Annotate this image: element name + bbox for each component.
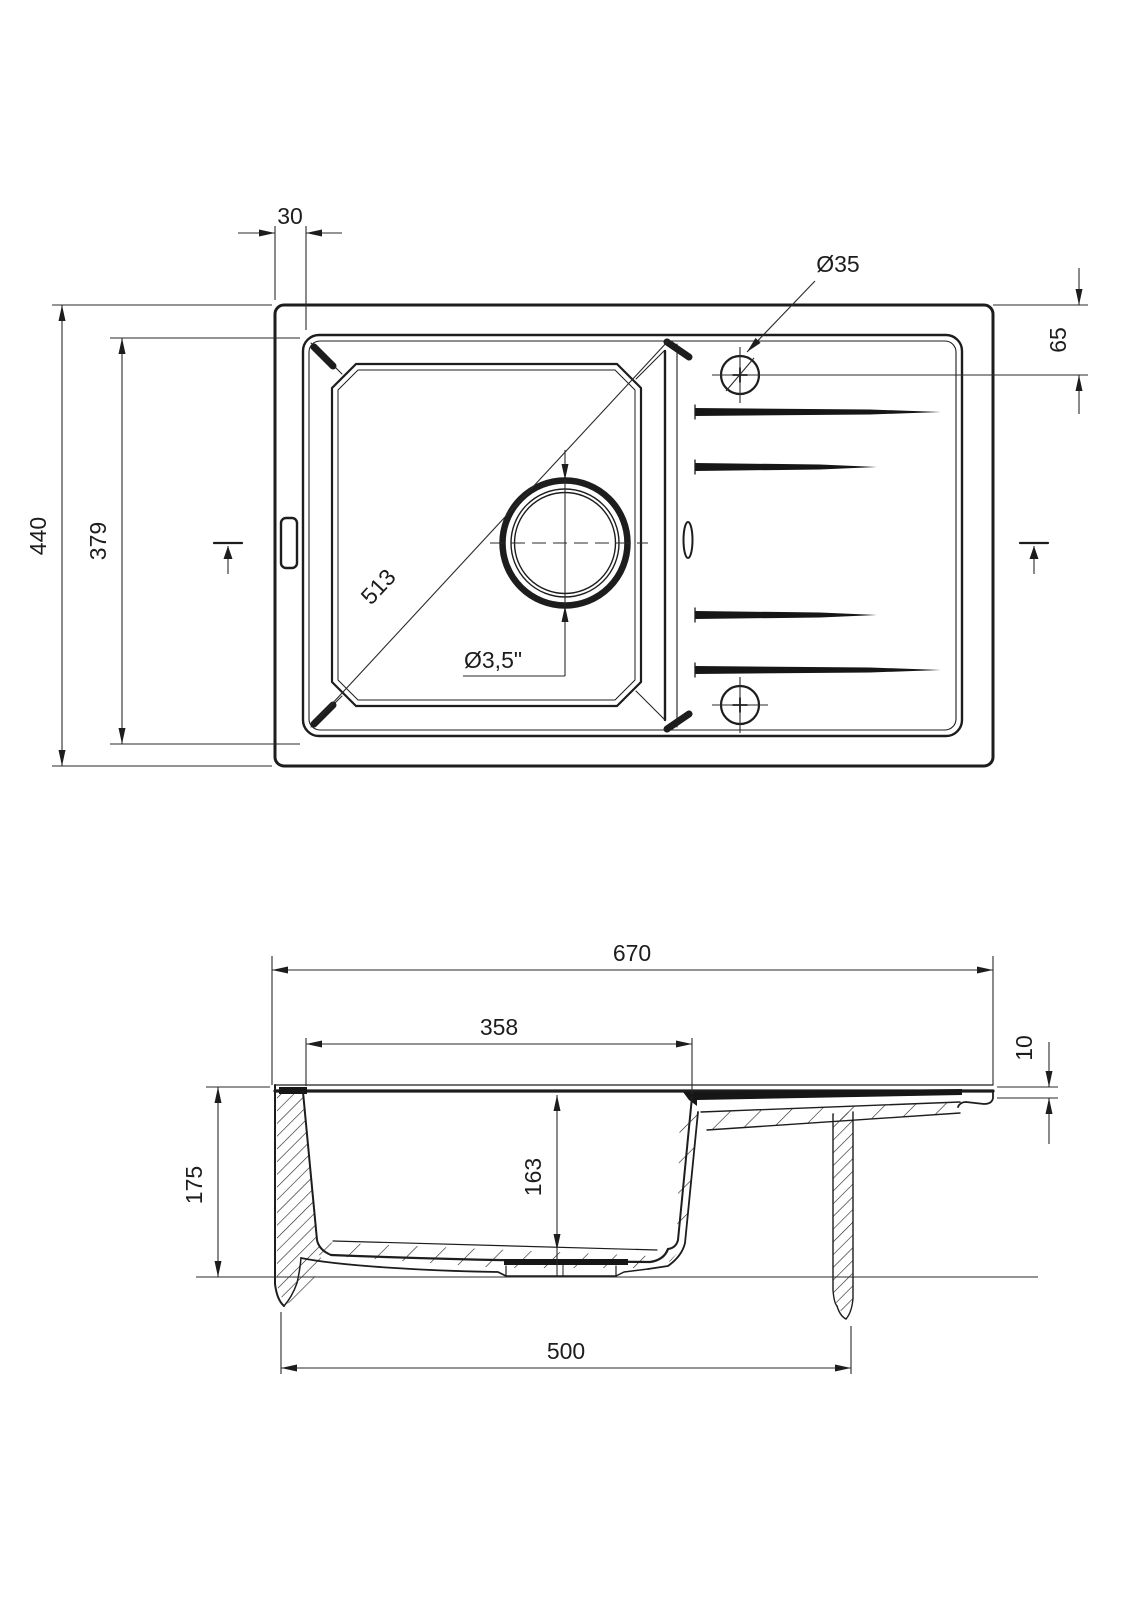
dim-rim-thickness: 10	[997, 1035, 1058, 1144]
recess-outline	[303, 335, 962, 736]
dim-faucet-hole-dia: Ø35	[747, 251, 860, 352]
dim-bowl-depth: 163	[520, 1095, 561, 1276]
right-lip	[958, 1091, 993, 1107]
level-mark-right	[1020, 543, 1048, 574]
dim-bowl-diagonal-label: 513	[356, 564, 401, 610]
dim-base-width: 500	[281, 1312, 851, 1374]
dim-drain-dia-label: Ø3,5"	[464, 647, 522, 673]
dim-rim-thickness-label: 10	[1011, 1035, 1037, 1061]
groove-2	[695, 463, 877, 471]
top-view: 513 30 Ø35 65	[25, 203, 1088, 766]
faucet-hole-bottom	[712, 677, 768, 733]
divider-notch	[683, 1092, 697, 1106]
dim-base-width-label: 500	[547, 1338, 585, 1364]
drainboard-grooves	[695, 405, 941, 677]
dim-rim-offset: 30	[238, 203, 342, 330]
dim-faucet-hole-dia-label: Ø35	[816, 251, 859, 277]
groove-3	[695, 611, 877, 619]
dim-faucet-hole-offset: 65	[993, 268, 1088, 414]
drain-boss-outline	[506, 1269, 648, 1276]
dim-bowl-width: 358	[306, 1014, 692, 1094]
sink-outer-outline	[275, 305, 993, 766]
dim-inner-depth-label: 379	[85, 522, 111, 560]
dim-overall-height-label: 175	[181, 1166, 207, 1204]
bowl-corner-line-tr	[636, 351, 664, 379]
divider-chamfer-wedge-top	[667, 342, 689, 357]
technical-drawing: 513 30 Ø35 65	[0, 0, 1131, 1600]
groove-4	[695, 666, 941, 674]
dim-bowl-width-label: 358	[480, 1014, 518, 1040]
level-mark-left	[214, 543, 242, 574]
divider-chamfer-wedge-bottom	[667, 714, 689, 729]
bowl-chamfer-wedge-tl	[314, 347, 333, 366]
dim-overall-width: 670	[272, 940, 993, 1085]
section-view: 670 358 10 175	[181, 940, 1058, 1374]
dim-faucet-hole-offset-label: 65	[1045, 327, 1071, 353]
dim-inner-depth: 379	[85, 338, 300, 744]
bowl-chamfer-wedge-bl	[314, 705, 333, 724]
bowl-corner-line-br	[636, 691, 664, 719]
groove-1	[695, 408, 941, 416]
dim-rim-offset-label: 30	[277, 203, 303, 229]
dim-overall-depth: 440	[25, 305, 272, 766]
dim-bowl-depth-label: 163	[520, 1158, 546, 1196]
dim-overall-depth-label: 440	[25, 517, 51, 555]
right-leg-hatch	[833, 1112, 853, 1318]
overflow-slot	[281, 518, 297, 568]
dim-overall-width-label: 670	[613, 940, 651, 966]
drain-opening	[490, 481, 648, 606]
overflow-oval	[684, 522, 693, 558]
drawing-canvas: 513 30 Ø35 65	[0, 0, 1131, 1600]
drain-boss-band	[504, 1259, 628, 1265]
faucet-hole-top	[712, 347, 1088, 403]
